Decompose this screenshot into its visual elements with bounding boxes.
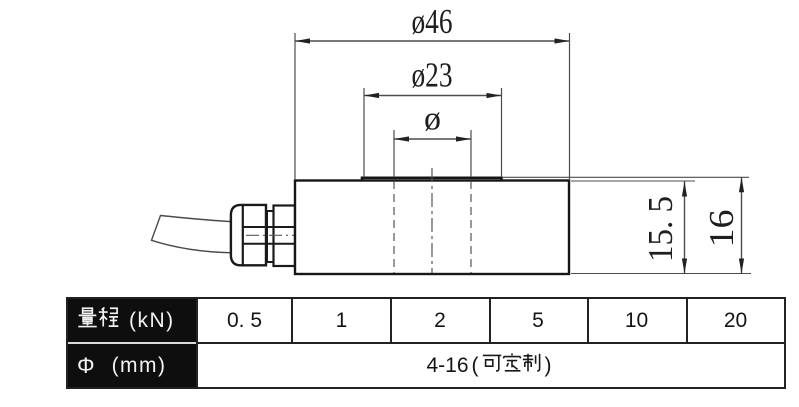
svg-text:ø23: ø23: [412, 57, 453, 95]
svg-text:15. 5: 15. 5: [642, 196, 680, 262]
svg-text:16: 16: [703, 210, 741, 248]
svg-text:ø46: ø46: [412, 3, 453, 41]
svg-text:ø: ø: [424, 101, 441, 138]
